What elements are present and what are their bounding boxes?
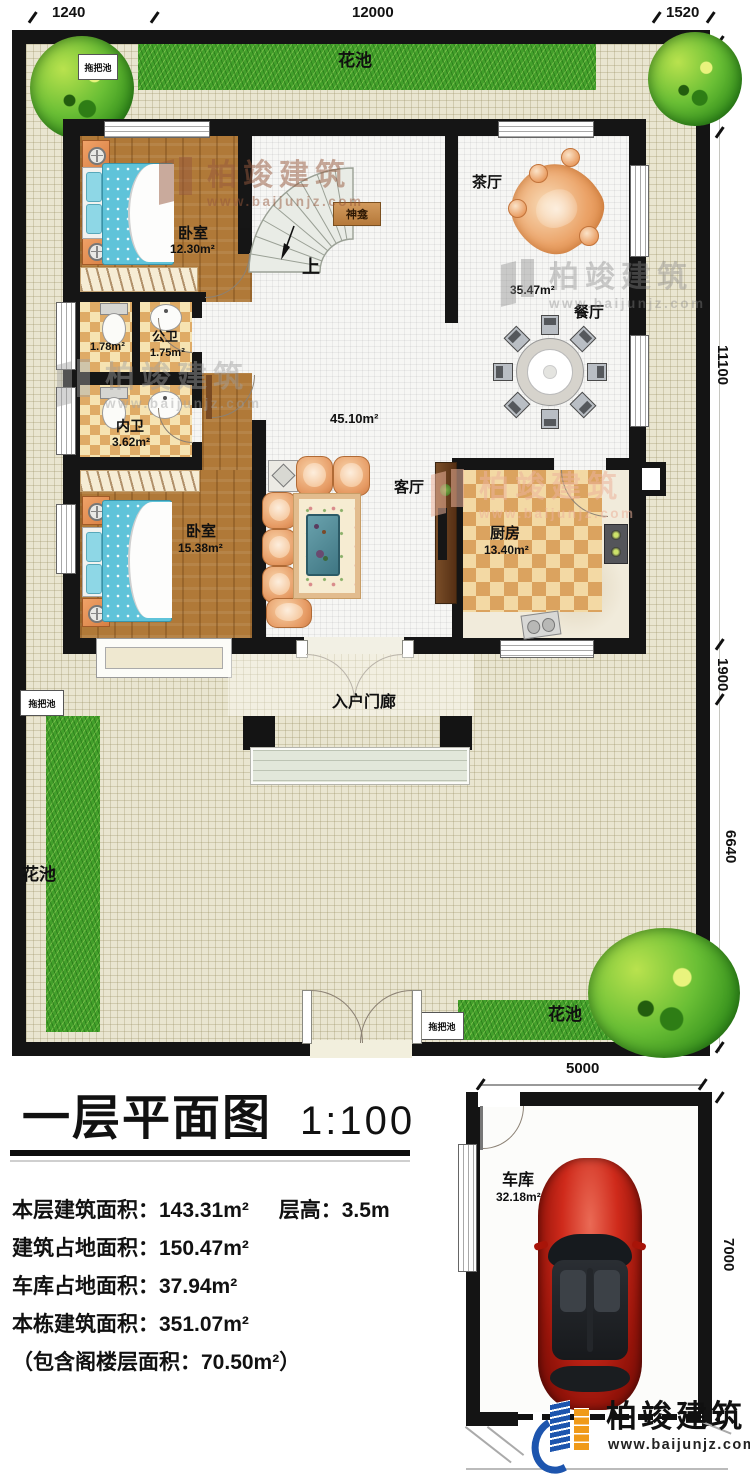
wall [80, 372, 202, 385]
pillow [86, 204, 102, 234]
car-cockpit [552, 1260, 628, 1360]
flower-bed-top-label: 花池 [338, 52, 372, 71]
garage-entry-opening [478, 1090, 520, 1107]
stat-garage-footprint: 车库占地面积：37.94m² [12, 1268, 390, 1306]
wall [606, 458, 629, 470]
dim-right-6640: 6640 [722, 830, 739, 863]
stat-total-building-area: 本栋建筑面积：351.07m² [12, 1306, 390, 1344]
car-console [587, 1268, 593, 1352]
dim-right-11100: 11100 [714, 345, 731, 385]
stat-floor-area: 本层建筑面积：143.31m² [12, 1199, 249, 1222]
wall [452, 458, 554, 470]
stairs-up-label: 上 [302, 258, 320, 278]
dim-top-1520: 1520 [666, 4, 699, 21]
dining-chair [493, 363, 513, 381]
mop-pool-bottom-label: 拖把池 [428, 1020, 455, 1033]
mop-pool-top-label: 拖把池 [84, 61, 111, 74]
sofa-seat [333, 456, 370, 496]
dim-garage-7000: 7000 [720, 1238, 737, 1271]
bay-window-sill [105, 647, 223, 669]
dim-tick [715, 1091, 725, 1103]
gate-jamb [412, 990, 422, 1044]
lamp-icon [88, 147, 106, 165]
tv-icon [438, 508, 447, 560]
garage-area: 32.18m² [496, 1191, 541, 1204]
dim-top-12000: 12000 [352, 4, 394, 21]
bay-window [96, 638, 232, 678]
blanket [128, 502, 172, 618]
dim-line [480, 1084, 702, 1086]
stats-block: 本层建筑面积：143.31m² 层高：3.5m 建筑占地面积：150.47m² … [12, 1192, 390, 1382]
garage-label: 车库 [502, 1172, 534, 1190]
bedroom-bottom-area: 15.38m² [178, 542, 223, 555]
dim-top-1240: 1240 [52, 4, 85, 21]
mop-pool-left-label: 拖把池 [28, 697, 55, 710]
window [458, 1144, 477, 1272]
stat-floor-area-row: 本层建筑面积：143.31m² 层高：3.5m [12, 1192, 390, 1230]
window [630, 165, 649, 257]
living-room-area: 45.10m² [330, 412, 378, 426]
stat-attic-note: （包含阁楼层面积：70.50m²） [12, 1344, 390, 1382]
public-bathroom-area: 1.75m² [150, 347, 185, 359]
tree-icon [588, 928, 740, 1058]
living-room-label: 客厅 [394, 480, 424, 497]
driveway-line [487, 1426, 524, 1456]
driveway-line [465, 1426, 512, 1463]
title-underline [10, 1150, 410, 1156]
bedroom-top-label: 卧室 [178, 226, 208, 243]
sofa-seat [262, 492, 297, 529]
stove-icon [604, 524, 628, 564]
car-rear-window [550, 1366, 630, 1392]
window [498, 121, 594, 138]
mop-pool-bottom: 拖把池 [420, 1012, 464, 1040]
stool [579, 226, 599, 246]
flower-bed-bottom-label: 花池 [548, 1006, 582, 1025]
brand-logo-tower-blue [550, 1400, 570, 1452]
private-bathroom-label: 内卫 [116, 419, 144, 434]
flower-icon [322, 530, 326, 534]
brand-name: 柏竣建筑 [606, 1400, 746, 1434]
private-bathroom-area: 3.62m² [112, 436, 150, 449]
sofa-seat [296, 456, 333, 496]
wall-niche [636, 462, 666, 496]
window [56, 504, 76, 574]
flower-bed-left-label: 花池 [22, 866, 56, 885]
plant-icon [440, 484, 451, 496]
dining-room-area: 35.47m² [510, 284, 555, 297]
dim-extension-line [719, 40, 720, 1052]
shrine-label: 神龛 [346, 206, 368, 222]
tree-icon [648, 32, 742, 126]
wall [80, 292, 206, 302]
window [500, 640, 594, 658]
brand-url: www.baijunjz.com [608, 1438, 750, 1454]
driveway-line [466, 1468, 728, 1470]
sink-basin [541, 617, 556, 633]
stat-floor-height: 层高：3.5m [279, 1199, 390, 1222]
bedroom-top-wardrobe [80, 267, 198, 292]
bedroom-bottom-wardrobe [80, 470, 200, 492]
porch-column [243, 716, 275, 750]
dim-tick [706, 11, 716, 23]
wall [192, 352, 202, 408]
lamp-icon [271, 463, 295, 487]
window [104, 121, 210, 138]
porch-steps [251, 748, 469, 784]
corner-table [268, 460, 298, 492]
wall [445, 136, 458, 323]
floor-plan-page: 1240 12000 1520 2120 11100 1900 6640 花池 … [0, 0, 750, 1477]
dining-room-label: 餐厅 [574, 305, 604, 322]
window [630, 335, 649, 427]
coffee-table [306, 514, 340, 576]
stat-building-footprint: 建筑占地面积：150.47m² [12, 1230, 390, 1268]
window [56, 387, 76, 455]
flower-icon [314, 524, 319, 529]
kitchen-label: 厨房 [490, 526, 520, 543]
dining-table-hub [543, 365, 557, 379]
stool [529, 164, 548, 183]
plan-scale: 1:100 [300, 1099, 415, 1143]
brand-logo-tower-orange [574, 1408, 589, 1450]
pillow [86, 564, 102, 594]
toilet-compartment-area: 1.78m² [90, 341, 125, 353]
car-seat [594, 1270, 620, 1312]
stool [561, 148, 580, 167]
bedroom-top-area: 12.30m² [170, 243, 215, 256]
burner-icon [611, 530, 621, 540]
wall [192, 302, 202, 318]
pillow [86, 172, 102, 202]
plan-title: 一层平面图 [22, 1092, 272, 1145]
public-bathroom-label: 公卫 [152, 330, 178, 344]
wall [80, 457, 202, 470]
car [538, 1158, 642, 1410]
plan-title-row: 一层平面图1:100 [22, 1078, 415, 1148]
brand-logo-icon [534, 1396, 598, 1460]
dim-right-1900: 1900 [714, 658, 731, 691]
dim-tick [652, 11, 662, 23]
bedroom-bottom-label: 卧室 [186, 524, 216, 541]
dining-chair [587, 363, 607, 381]
tea-hall-label: 茶厅 [472, 175, 502, 192]
porch-column [440, 716, 472, 750]
mop-pool-left: 拖把池 [20, 690, 64, 716]
dim-tick [150, 11, 160, 23]
stool [508, 199, 527, 218]
dim-tick [28, 11, 38, 23]
pillow [86, 532, 102, 562]
kitchen-area: 13.40m² [484, 544, 529, 557]
mop-pool-top: 拖把池 [78, 54, 118, 80]
sofa-seat [262, 529, 297, 566]
entry-porch-label: 入户门廊 [332, 694, 396, 712]
title-underline-shadow [10, 1160, 410, 1162]
flower-icon [323, 556, 328, 561]
wall [192, 442, 202, 470]
shrine-cabinet: 神龛 [333, 202, 381, 226]
dim-garage-5000: 5000 [566, 1060, 599, 1077]
burner-icon [611, 547, 621, 557]
wall [132, 302, 140, 372]
car-seat [560, 1270, 586, 1312]
sink-basin [526, 619, 541, 635]
blanket [128, 164, 174, 262]
dining-chair [541, 409, 559, 429]
window [56, 302, 76, 370]
entry-door-opening [304, 637, 404, 654]
sofa-chaise [266, 598, 312, 628]
dining-chair [541, 315, 559, 335]
